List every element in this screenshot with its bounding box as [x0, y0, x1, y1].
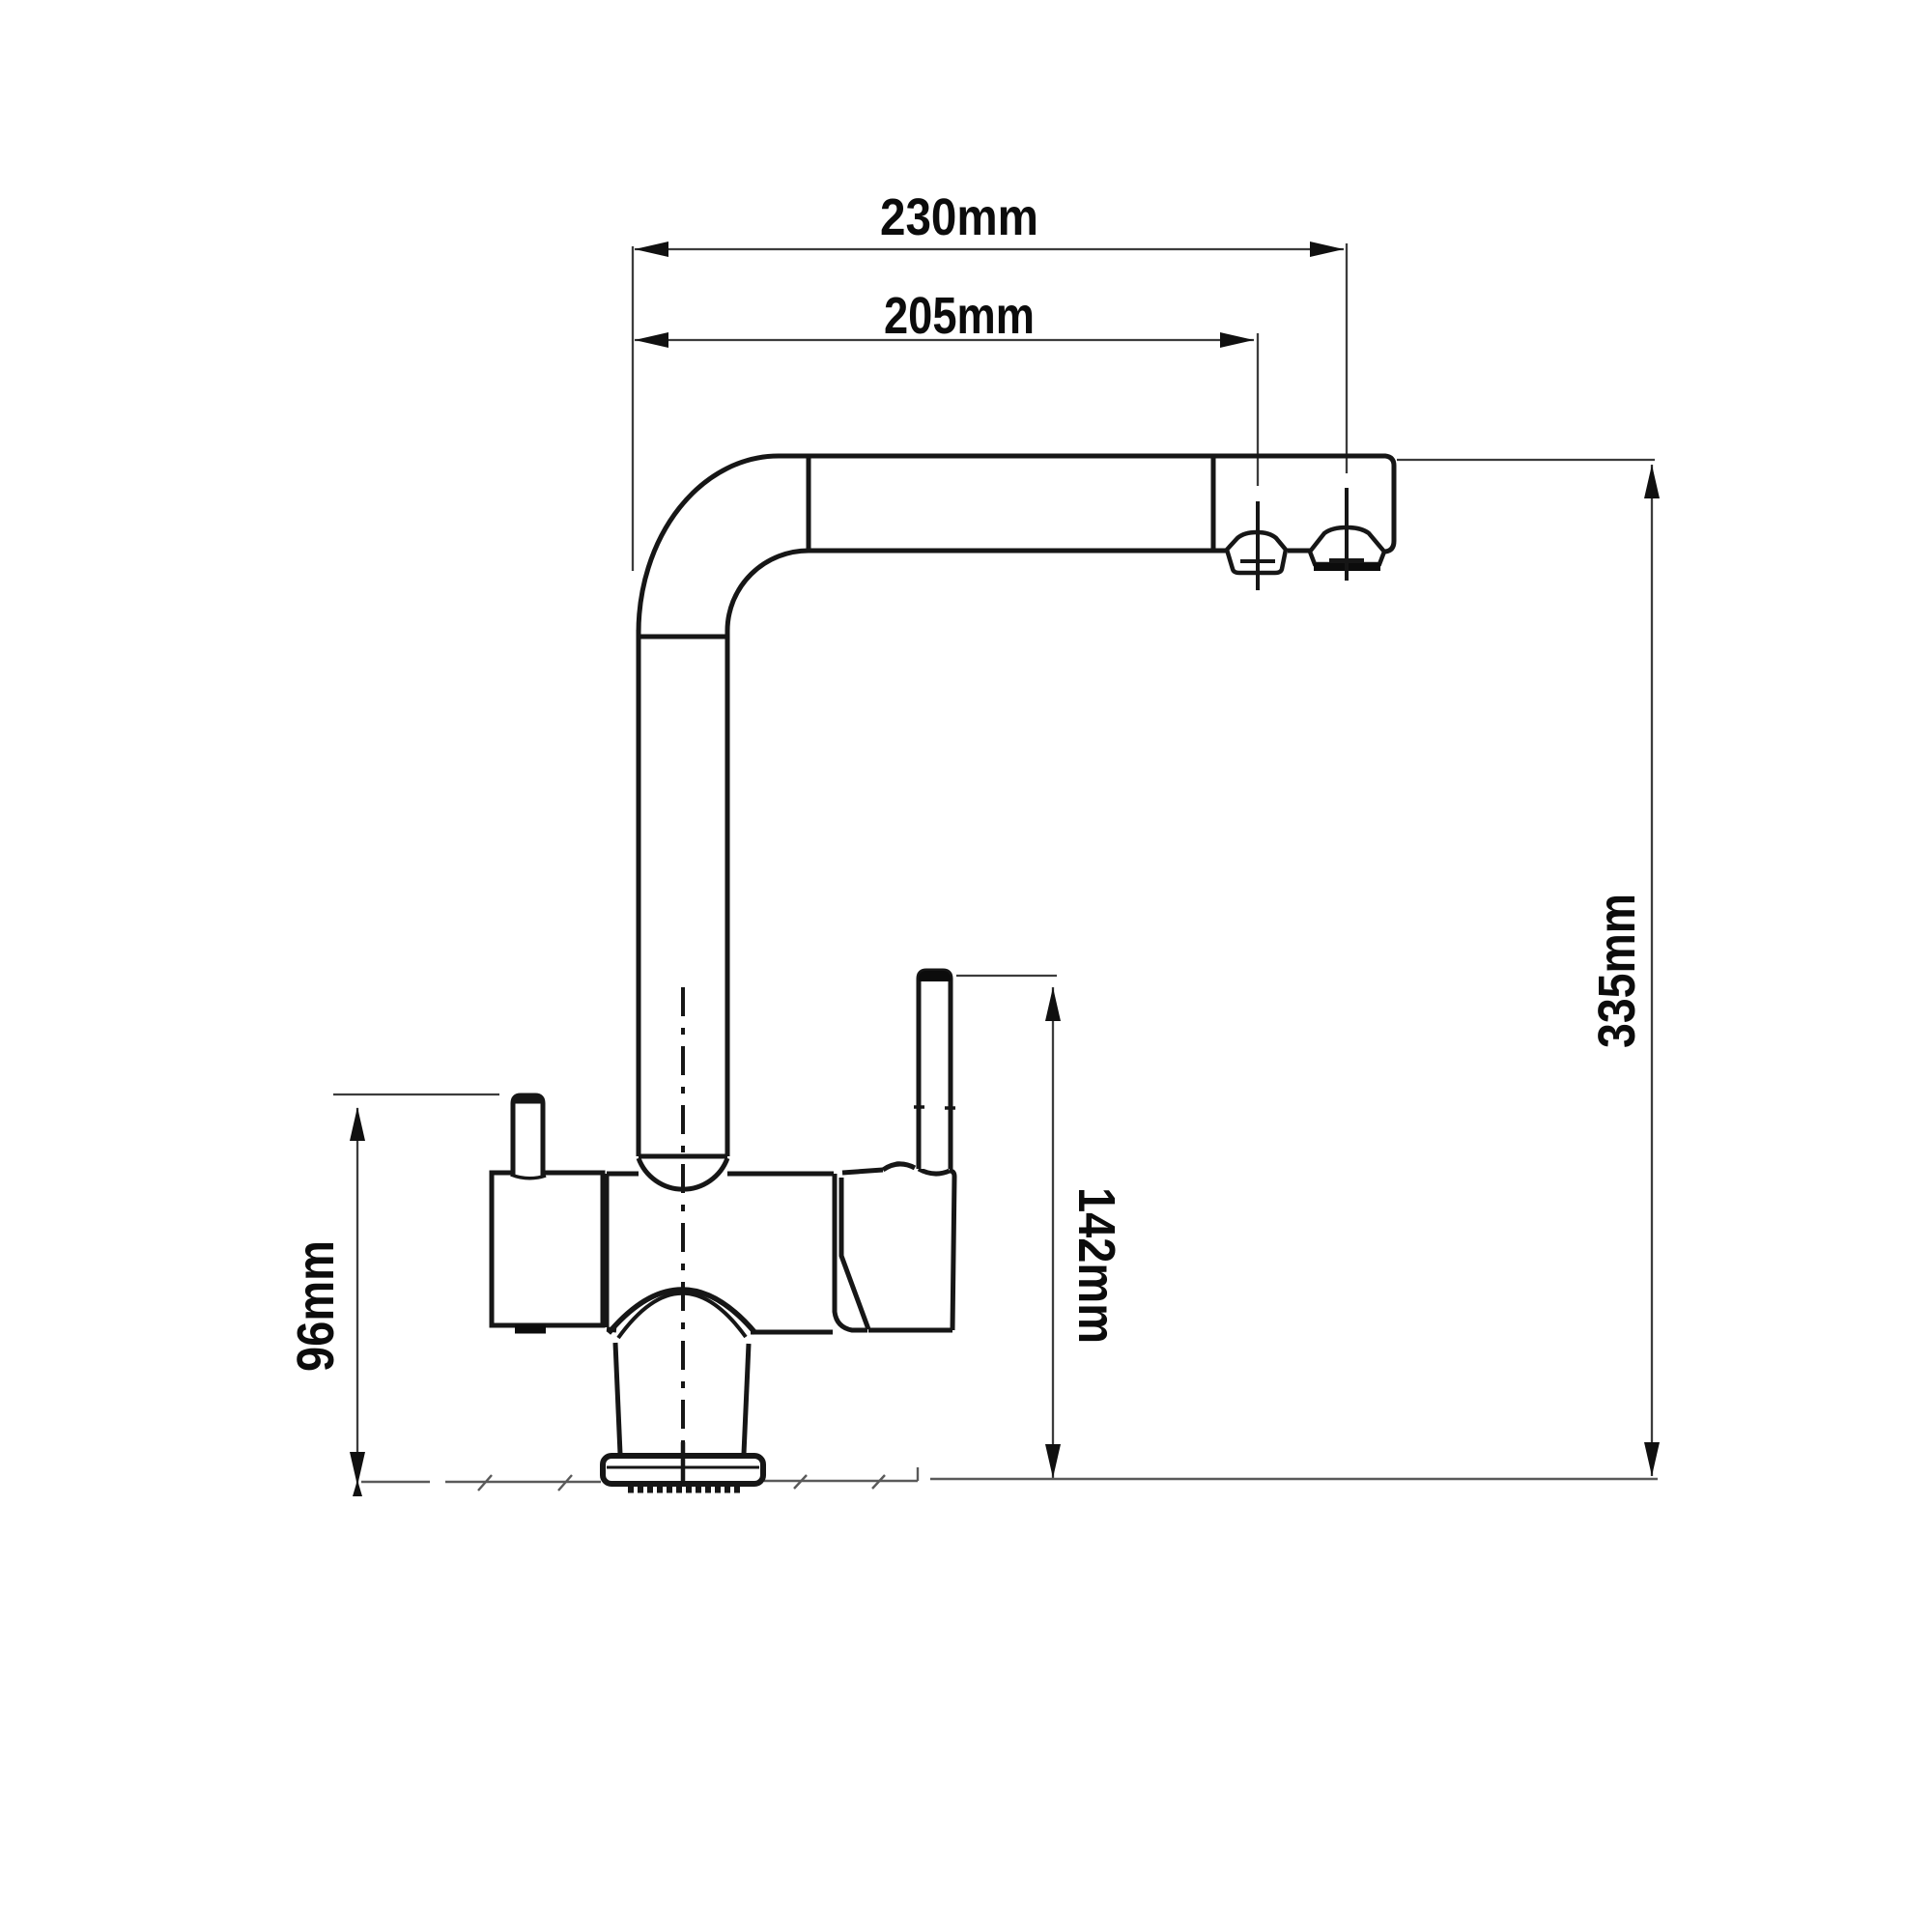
svg-text:205mm: 205mm — [884, 287, 1035, 345]
svg-text:142mm: 142mm — [1067, 1187, 1125, 1344]
svg-text:230mm: 230mm — [880, 188, 1038, 246]
svg-text:96mm: 96mm — [287, 1240, 345, 1372]
svg-text:335mm: 335mm — [1588, 894, 1646, 1048]
